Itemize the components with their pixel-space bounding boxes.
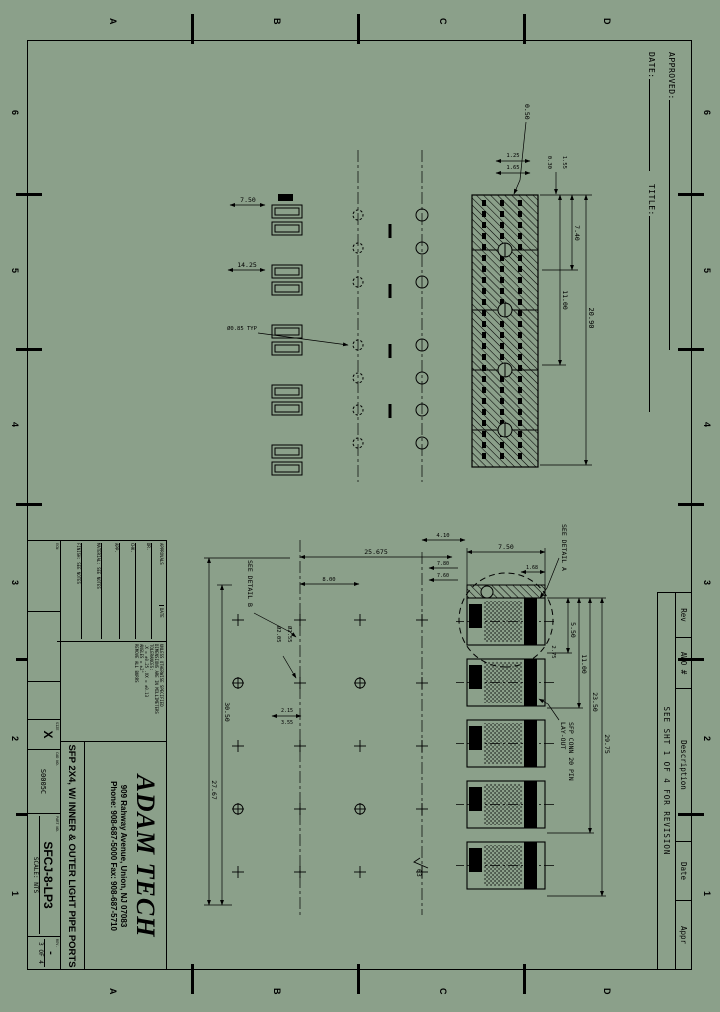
drawing-views: 20.90 7.40 11.00 1.55 0.30 1.25 1.65 0.5… (0, 0, 720, 1012)
grid-centerlines (300, 540, 422, 915)
view2-ext-lines (547, 598, 606, 896)
dim-050: 0.50 (523, 104, 531, 120)
see-detail-b-note: SEE DETAIL B (246, 560, 254, 607)
conn-note-leader (539, 699, 559, 720)
conn-note-line1: SFP CONN 20 PIN (567, 722, 575, 781)
port (456, 842, 554, 889)
dim-740: 7.40 (573, 225, 581, 241)
scanned-drawing-page: { "page": { "bg": "#8ba08a", "ink": "#00… (0, 0, 720, 1012)
centerlines (358, 150, 422, 482)
dim-800: 8.00 (322, 577, 335, 583)
view2-bottom-dims (204, 558, 290, 905)
port (456, 598, 554, 645)
dim-2090: 20.90 (587, 307, 595, 328)
dim-760: 7.60 (437, 573, 449, 579)
conn-note-line2: LAY-OUT (559, 722, 567, 749)
ports (456, 598, 554, 889)
dim-dia-205: Ø2.05 (275, 626, 282, 643)
dim-550: 5.50 (569, 622, 577, 638)
dim-2975: 29.75 (603, 734, 611, 754)
dim-030: 0.30 (546, 156, 552, 169)
dim-275: 2.75 (550, 645, 556, 658)
dim-215: 2.15 (281, 708, 293, 714)
grid-row (354, 614, 366, 878)
dim-750: 7.50 (240, 196, 256, 204)
view-top: 20.90 7.40 11.00 1.55 0.30 1.25 1.65 0.5… (227, 104, 595, 482)
dim-1100b: 11.00 (580, 654, 588, 674)
dim-168: 1.68 (526, 565, 538, 571)
view1-extension-lines (540, 195, 592, 465)
press-fit-slots (272, 205, 302, 475)
keying-bar (278, 194, 293, 201)
dim-780: 7.80 (437, 561, 449, 567)
port (456, 720, 554, 767)
hole-grid (232, 614, 428, 878)
grid-row (232, 614, 244, 878)
finish-check-icon (414, 858, 428, 868)
dim-155: 1.55 (561, 156, 567, 169)
hole-callout-leader (283, 656, 296, 678)
port (456, 781, 554, 828)
dim-410: 4.10 (436, 533, 449, 539)
drawing-sheet: 6 5 4 3 2 1 6 5 4 3 2 1 D C B A D C B A … (0, 0, 720, 1012)
dim-125: 1.25 (506, 153, 519, 159)
dim-2350: 23.50 (591, 692, 599, 712)
dim-2767: 27.67 (210, 780, 218, 800)
view-front: 5.50 11.00 23.50 29.75 2.75 SEE DETAIL A… (204, 524, 611, 915)
dim-355: 3.55 (281, 720, 293, 726)
dim-750b: 7.50 (498, 543, 514, 551)
finish-value: 63 (415, 869, 423, 877)
dim-1100: 11.00 (561, 290, 569, 310)
dim-1425: 14.25 (237, 261, 257, 269)
dim-hole-callout: Ø0.85 TYP (227, 325, 257, 332)
see-detail-a-note: SEE DETAIL A (560, 524, 568, 571)
dim-165: 1.65 (506, 165, 519, 171)
dim-dia-255: Ø2.55 (286, 626, 293, 643)
dim-3050: 30.50 (223, 702, 231, 722)
dim-25675: 25.675 (364, 548, 388, 556)
end-cap (467, 585, 545, 598)
mount-hole (481, 586, 493, 598)
